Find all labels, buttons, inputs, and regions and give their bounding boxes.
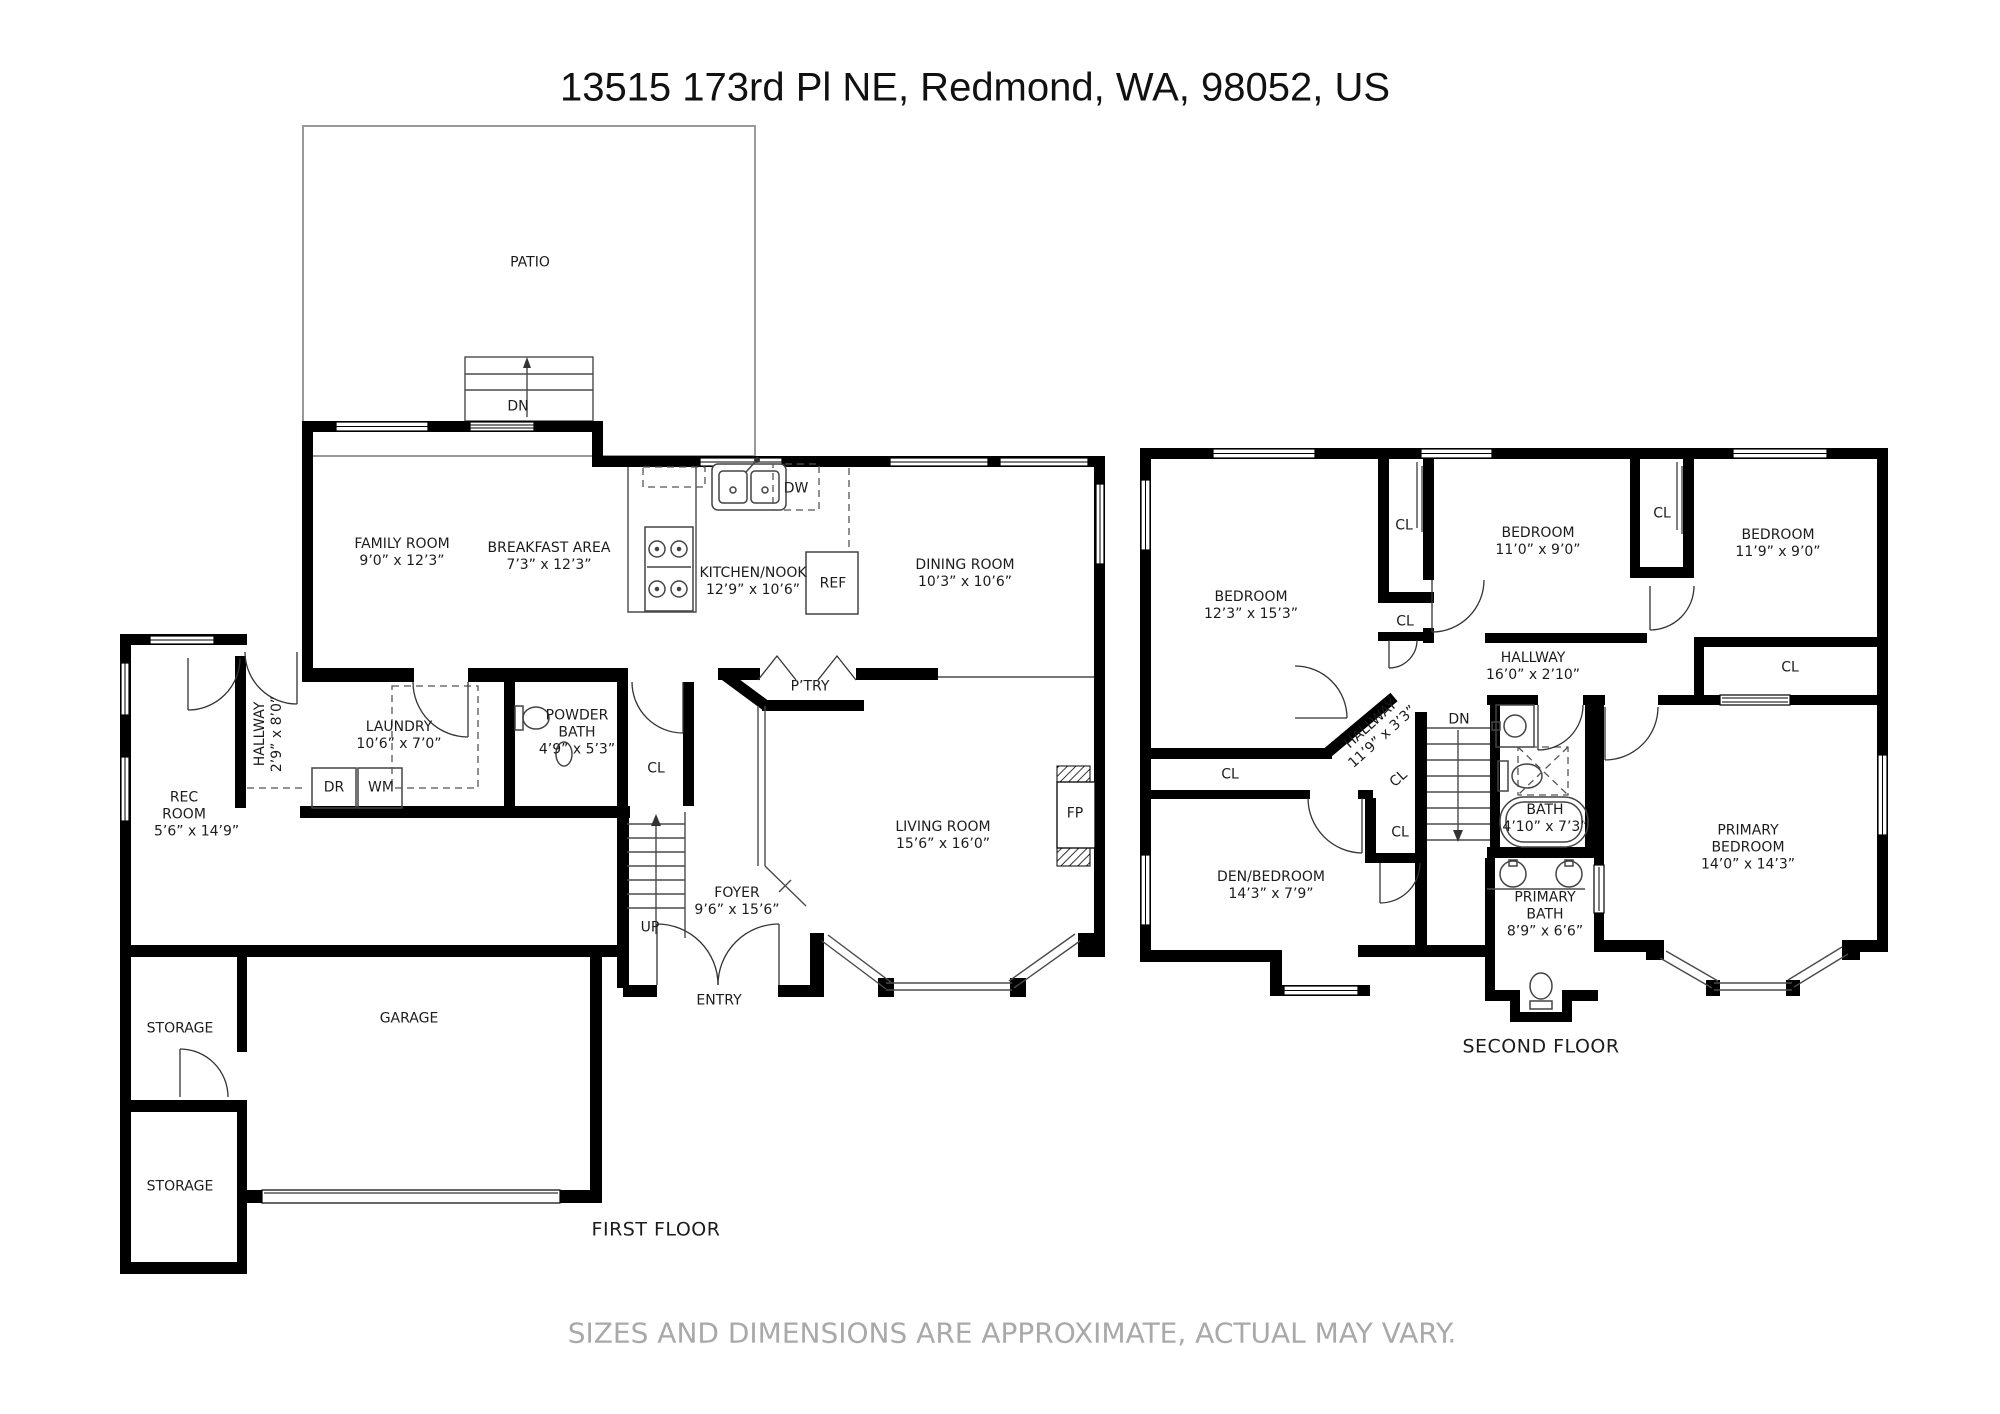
room-label-kitchen-nook: KITCHEN/NOOK12’9” x 10’6”	[699, 565, 806, 599]
room-label-den-bedroom: DEN/BEDROOM14’3” x 7’9”	[1217, 869, 1325, 903]
closet-slider-doors	[1417, 462, 1682, 534]
fireplace-label: FP	[1067, 806, 1084, 823]
room-label-hallway-1f: HALLWAY2’9” x 8’0”	[252, 696, 286, 772]
room-label-family-room: FAMILY ROOM9’0” x 12’3”	[354, 536, 449, 570]
room-label-bedroom-left: BEDROOM12’3” x 15’3”	[1204, 589, 1298, 623]
stairs-dn-label-1f: DN	[507, 399, 528, 416]
closet-label-4: CL	[1781, 660, 1799, 677]
dryer-label: DR	[324, 780, 345, 797]
second-floor-stairs-icon	[1427, 728, 1490, 840]
foyer-stairs-arrow	[651, 814, 661, 826]
living-room-bay-window	[822, 934, 1080, 990]
closet-label-5: CL	[1221, 767, 1239, 784]
room-label-foyer: FOYER9’6” x 15’6”	[694, 885, 779, 919]
floor-plan-page: 13515 173rd Pl NE, Redmond, WA, 98052, U…	[0, 0, 2000, 1414]
room-label-primary-bath: PRIMARY BATH8’9” x 6’6”	[1501, 890, 1589, 941]
refrigerator-label: REF	[820, 576, 847, 593]
stairs-dn-label-2f: DN	[1448, 712, 1469, 729]
room-label-bath: BATH4’10” x 7’3”	[1502, 802, 1587, 836]
pantry-label: P’TRY	[791, 679, 830, 696]
closet-label-2: CL	[1396, 614, 1414, 631]
stove-icon	[645, 527, 693, 611]
room-label-primary-bedroom: PRIMARY BEDROOM14’0” x 14’3”	[1698, 823, 1798, 874]
entry-label: ENTRY	[696, 993, 741, 1010]
closet-label-foyer: CL	[647, 761, 665, 778]
first-floor-caption: FIRST FLOOR	[592, 1222, 721, 1239]
closet-label-3: CL	[1653, 506, 1671, 523]
washer-label: WM	[368, 780, 394, 797]
room-label-dining-room: DINING ROOM10’3” x 10’6”	[915, 557, 1014, 591]
pantry-bifold-doors	[758, 656, 856, 680]
room-label-hallway-main: HALLWAY16’0” x 2’10”	[1486, 650, 1580, 684]
room-label-bedroom-middle: BEDROOM11’0” x 9’0”	[1495, 525, 1580, 559]
stairs-up-label: UP	[641, 920, 660, 937]
closet-label-1: CL	[1395, 518, 1413, 535]
disclaimer-text: SIZES AND DIMENSIONS ARE APPROXIMATE, AC…	[568, 1317, 1457, 1350]
foyer-living-divider	[758, 677, 1094, 906]
room-label-bedroom-right: BEDROOM11’9” x 9’0”	[1735, 527, 1820, 561]
floor-plan-drawing	[0, 0, 2000, 1414]
garage-door	[262, 1190, 560, 1203]
room-label-living-room: LIVING ROOM15’6” x 16’0”	[895, 819, 990, 853]
closet-label-7: CL	[1391, 825, 1409, 842]
room-label-rec-room: REC ROOM5’6” x 14’9”	[154, 790, 214, 841]
room-label-storage-upper: STORAGE	[147, 1021, 214, 1038]
room-label-breakfast-area: BREAKFAST AREA7’3” x 12’3”	[488, 540, 611, 574]
room-label-laundry: LAUNDRY10’6” x 7’0”	[356, 719, 441, 753]
kitchen-sink-icon	[712, 457, 786, 510]
room-label-garage: GARAGE	[380, 1011, 439, 1028]
room-label-powder-bath: POWDER BATH4’9” x 5’3”	[536, 708, 618, 759]
second-floor-caption: SECOND FLOOR	[1462, 1039, 1619, 1056]
room-label-storage-lower: STORAGE	[147, 1179, 214, 1196]
dishwasher-label: DW	[784, 481, 809, 498]
room-label-patio: PATIO	[510, 255, 550, 272]
page-title: 13515 173rd Pl NE, Redmond, WA, 98052, U…	[560, 66, 1390, 111]
primary-bay-window	[1660, 947, 1848, 990]
